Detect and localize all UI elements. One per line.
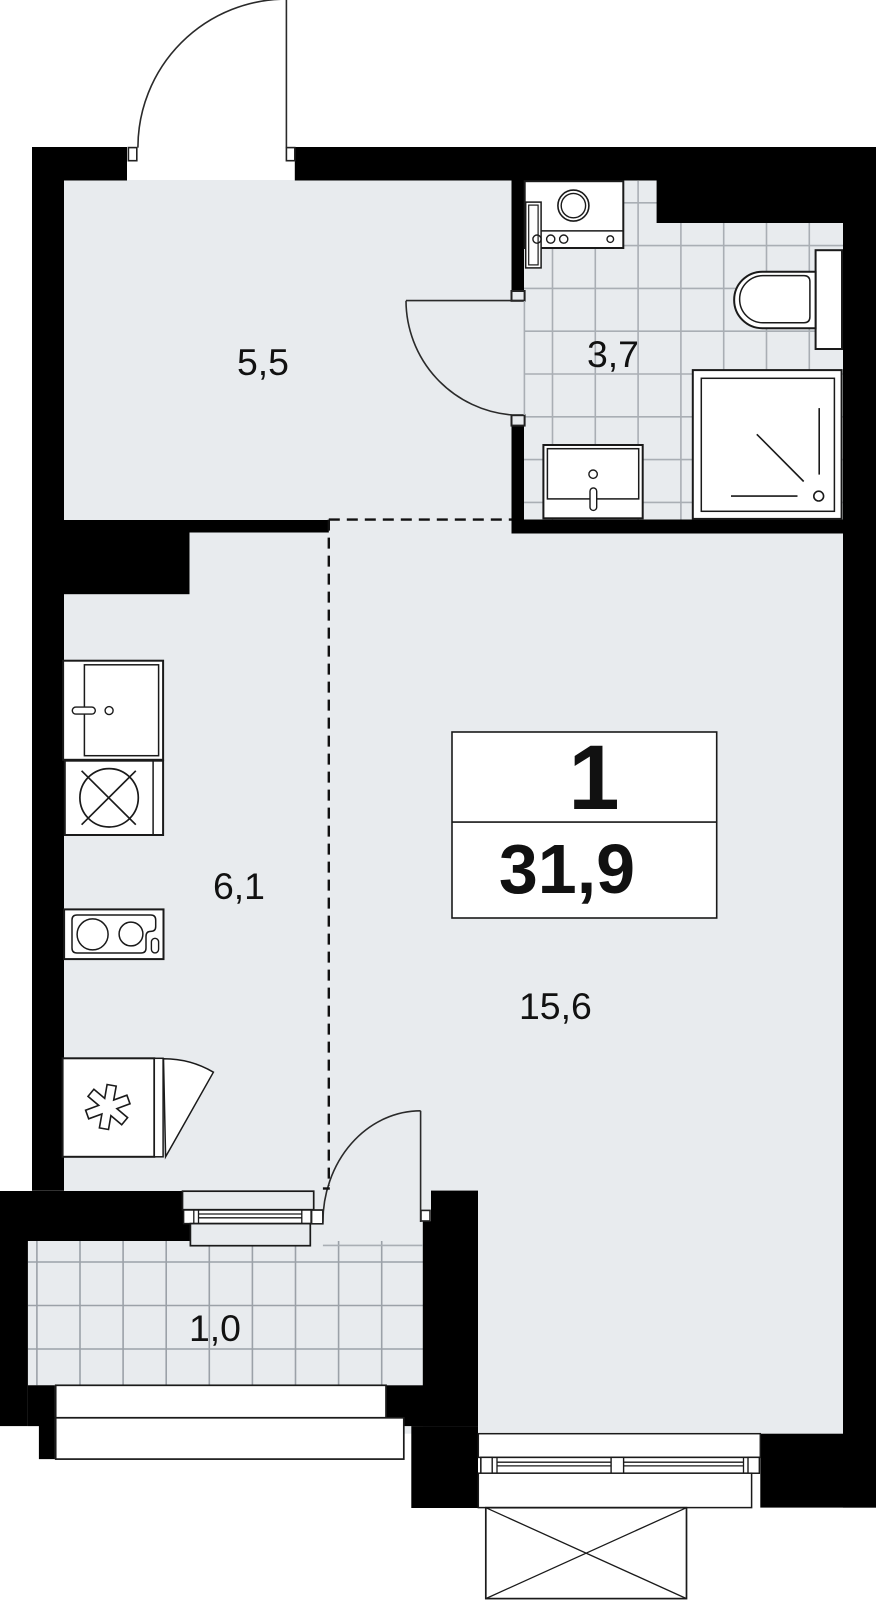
- svg-text:5,5: 5,5: [237, 341, 289, 383]
- svg-text:3,7: 3,7: [587, 333, 639, 375]
- svg-text:1,0: 1,0: [189, 1307, 241, 1349]
- svg-text:15,6: 15,6: [519, 985, 592, 1027]
- svg-text:31,9: 31,9: [499, 830, 635, 908]
- svg-text:1: 1: [568, 727, 619, 829]
- svg-text:6,1: 6,1: [213, 865, 265, 907]
